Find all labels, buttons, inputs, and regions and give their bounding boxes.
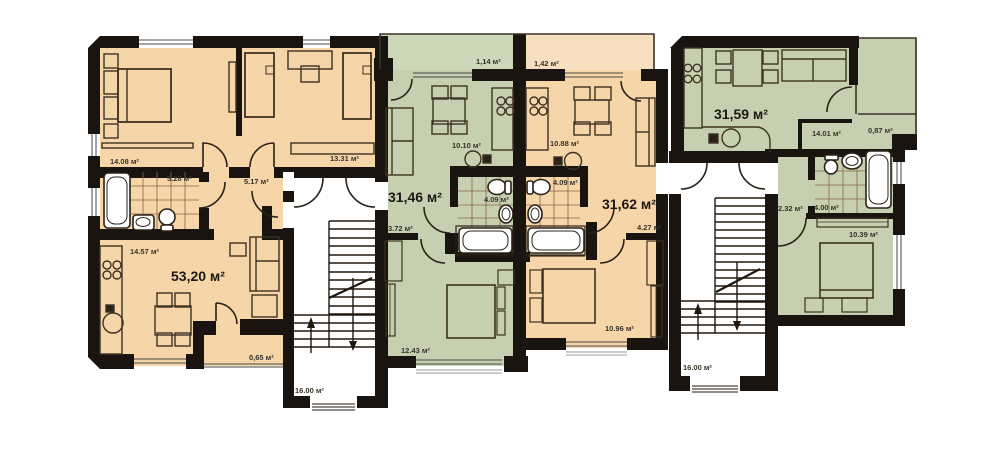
svg-text:10.88 м²: 10.88 м² (550, 139, 579, 148)
svg-text:4.09 м²: 4.09 м² (553, 178, 578, 187)
svg-text:53,20 м²: 53,20 м² (171, 268, 225, 284)
svg-text:16.00 м²: 16.00 м² (295, 386, 324, 395)
svg-text:2.32 м²: 2.32 м² (778, 204, 803, 213)
svg-text:31,46 м²: 31,46 м² (388, 189, 442, 205)
svg-text:1,14 м²: 1,14 м² (476, 57, 501, 66)
svg-text:31,59 м²: 31,59 м² (714, 106, 768, 122)
svg-text:4.00 м²: 4.00 м² (814, 203, 839, 212)
svg-text:14.01 м²: 14.01 м² (812, 129, 841, 138)
svg-text:14.08 м²: 14.08 м² (110, 157, 139, 166)
svg-text:10.96 м²: 10.96 м² (605, 324, 634, 333)
svg-text:10.39 м²: 10.39 м² (849, 230, 878, 239)
svg-text:12.43 м²: 12.43 м² (401, 346, 430, 355)
svg-text:0,65 м²: 0,65 м² (249, 353, 274, 362)
svg-text:14.57 м²: 14.57 м² (130, 247, 159, 256)
svg-text:31,62 м²: 31,62 м² (602, 196, 656, 212)
svg-text:13.31 м²: 13.31 м² (330, 154, 359, 163)
svg-text:16.00 м²: 16.00 м² (683, 363, 712, 372)
svg-text:4.27 м²: 4.27 м² (637, 223, 662, 232)
svg-text:10.10 м²: 10.10 м² (452, 141, 481, 150)
svg-text:5.28 м²: 5.28 м² (167, 174, 192, 183)
svg-text:1,42 м²: 1,42 м² (534, 59, 559, 68)
svg-text:0,87 м²: 0,87 м² (868, 126, 893, 135)
svg-text:5.17 м²: 5.17 м² (244, 177, 269, 186)
svg-text:4.09 м²: 4.09 м² (484, 195, 509, 204)
svg-text:3.72 м²: 3.72 м² (388, 224, 413, 233)
